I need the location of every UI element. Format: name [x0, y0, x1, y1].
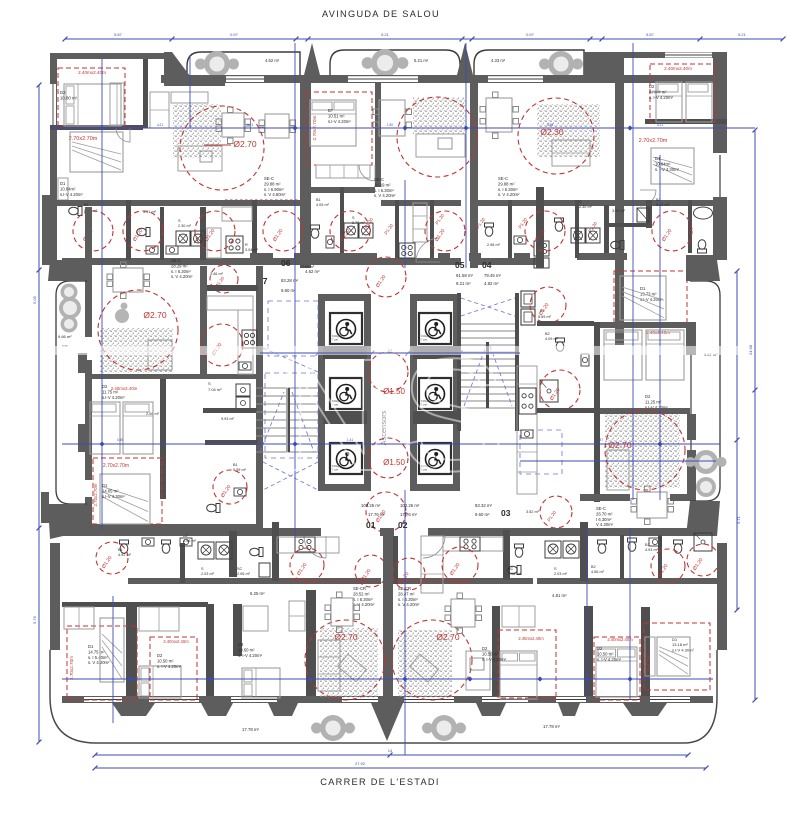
svg-text:s. I 6.30m²: s. I 6.30m² [353, 597, 373, 602]
svg-text:B2: B2 [591, 565, 596, 569]
svg-text:28.70 m²: 28.70 m² [596, 511, 613, 516]
svg-text:s.I-V 4.30m²: s.I-V 4.30m² [102, 494, 125, 499]
svg-text:Ø2.70: Ø2.70 [143, 310, 166, 320]
svg-text:0.97: 0.97 [526, 32, 535, 37]
svg-text:10.84m²: 10.84m² [655, 161, 671, 166]
svg-text:s. I 6.30m²: s. I 6.30m² [171, 269, 191, 274]
svg-text:s. I 6.30m²: s. I 6.30m² [374, 188, 394, 193]
svg-text:14.05 m²: 14.05 m² [102, 488, 119, 493]
svg-text:11.75 m²: 11.75 m² [102, 389, 119, 394]
svg-text:3.57 m²: 3.57 m² [612, 209, 626, 213]
svg-text:5.21: 5.21 [381, 32, 390, 37]
svg-text:5.87: 5.87 [646, 32, 655, 37]
svg-text:B1: B1 [316, 198, 321, 202]
svg-text:14: 14 [388, 748, 393, 753]
svg-text:5.76: 5.76 [32, 615, 37, 624]
svg-text:SE-C: SE-C [171, 258, 181, 263]
svg-text:s. V 4.20m²: s. V 4.20m² [171, 274, 193, 279]
svg-text:10.80 m²: 10.80 m² [60, 96, 78, 101]
svg-text:D2: D2 [102, 384, 108, 389]
svg-text:D2: D2 [157, 653, 163, 658]
svg-text:s. V 4.20m²: s. V 4.20m² [398, 602, 420, 607]
svg-text:2.40mx2.40m: 2.40mx2.40m [664, 66, 692, 71]
svg-text:2.70x2.70m: 2.70x2.70m [69, 136, 98, 142]
svg-text:83.28 m²: 83.28 m² [281, 278, 299, 283]
svg-text:D2: D2 [482, 646, 488, 651]
svg-text:05: 05 [455, 260, 465, 270]
svg-text:10.50 m²: 10.50 m² [482, 651, 499, 656]
svg-text:4.82 m²: 4.82 m² [484, 281, 499, 286]
svg-text:s. I-V 4.20m²: s. I-V 4.20m² [482, 657, 507, 662]
svg-text:03: 03 [501, 508, 511, 518]
svg-text:5.71: 5.71 [736, 515, 741, 524]
svg-text:B2: B2 [545, 332, 550, 336]
svg-text:s. I-V 4.20m²: s. I-V 4.20m² [157, 664, 182, 669]
svg-text:26.19 m²: 26.19 m² [374, 182, 391, 187]
svg-text:29.88 m²: 29.88 m² [498, 181, 515, 186]
svg-text:B1: B1 [118, 548, 123, 552]
svg-text:5.59 m²: 5.59 m² [233, 468, 247, 472]
svg-text:3.81: 3.81 [247, 123, 253, 127]
svg-text:2.03 m²: 2.03 m² [554, 572, 568, 576]
svg-text:2.70x2.70m: 2.70x2.70m [646, 653, 651, 677]
svg-text:2.40x2.40m: 2.40x2.40m [646, 330, 670, 335]
svg-text:##### m²: ##### m² [649, 89, 667, 94]
svg-text:SE-C: SE-C [264, 176, 274, 181]
svg-text:Ø2.30: Ø2.30 [540, 127, 563, 137]
svg-text:Ø2.70: Ø2.70 [608, 440, 631, 450]
svg-text:28.29 m²: 28.29 m² [171, 263, 188, 268]
svg-text:2.98 m²: 2.98 m² [487, 243, 501, 247]
svg-text:9.60 m²: 9.60 m² [475, 512, 490, 517]
svg-text:4.21: 4.21 [157, 123, 163, 127]
svg-text:s.I-V 4.30m²: s.I-V 4.30m² [672, 647, 694, 652]
svg-text:4.62 m²: 4.62 m² [305, 269, 320, 274]
svg-text:27.92: 27.92 [355, 761, 366, 766]
svg-text:5.25 m²: 5.25 m² [250, 591, 265, 596]
svg-text:10.50 m²: 10.50 m² [238, 647, 255, 652]
svg-text:24.68: 24.68 [748, 344, 753, 355]
svg-text:s. I 6.90m²: s. I 6.90m² [264, 187, 284, 192]
svg-text:2.70x2.70m: 2.70x2.70m [69, 656, 74, 680]
svg-text:2.40mx2.40m: 2.40mx2.40m [607, 637, 633, 642]
svg-text:s. V 4.20m²: s. V 4.20m² [498, 192, 520, 197]
svg-text:10.50 m²: 10.50 m² [597, 651, 614, 656]
svg-text:3.87: 3.87 [597, 438, 603, 442]
svg-text:2.40mx2.40m: 2.40mx2.40m [163, 639, 189, 644]
svg-text:3.04 m²: 3.04 m² [245, 248, 259, 252]
svg-text:s. I-V 4.20m²: s. I-V 4.20m² [649, 95, 674, 100]
svg-text:s.I-V 4.20m²: s.I-V 4.20m² [102, 395, 125, 400]
svg-text:V 4.20m²: V 4.20m² [596, 522, 614, 527]
svg-text:S: S [208, 381, 211, 386]
svg-text:s. V 4.60m²: s. V 4.60m² [264, 192, 286, 197]
svg-text:06: 06 [281, 258, 291, 268]
svg-text:CARRER DE L'ESTADI: CARRER DE L'ESTADI [320, 777, 439, 787]
svg-text:s. V 4.20m²: s. V 4.20m² [374, 193, 396, 198]
svg-text:D2: D2 [649, 84, 655, 89]
svg-text:SE-CR: SE-CR [353, 586, 366, 591]
svg-text:17.78 m²: 17.78 m² [242, 727, 260, 732]
svg-text:SE-C: SE-C [374, 177, 384, 182]
svg-text:s. I-V 4.30m²: s. I-V 4.30m² [655, 167, 680, 172]
svg-text:s.I-V 4.20m²: s.I-V 4.20m² [328, 119, 351, 124]
svg-text:D1: D1 [102, 483, 108, 488]
svg-text:28.52 m²: 28.52 m² [353, 591, 370, 596]
svg-text:D1: D1 [88, 644, 94, 649]
svg-text:91.58 m²: 91.58 m² [456, 273, 474, 278]
svg-text:SE-C: SE-C [498, 176, 508, 181]
svg-text:4.96 m²: 4.96 m² [183, 539, 197, 543]
svg-text:17.76 m²: 17.76 m² [400, 512, 418, 517]
svg-text:9.60 m²: 9.60 m² [281, 288, 296, 293]
svg-text:s. I-V 4.20m²: s. I-V 4.20m² [597, 657, 622, 662]
svg-text:B?: B? [328, 108, 334, 113]
svg-text:2.70x2.70m: 2.70x2.70m [93, 483, 98, 506]
svg-text:D2: D2 [645, 394, 651, 399]
svg-text:5.05: 5.05 [32, 295, 37, 304]
svg-text:5.21: 5.21 [738, 32, 747, 37]
svg-text:s.I-V 4.20m²: s.I-V 4.20m² [60, 192, 83, 197]
svg-text:2.06 m²: 2.06 m² [237, 572, 251, 576]
svg-text:s. V 4.20m²: s. V 4.20m² [88, 660, 110, 665]
svg-text:11.25 m²: 11.25 m² [645, 399, 662, 404]
svg-text:NS: NS [274, 325, 516, 504]
svg-text:BC: BC [508, 567, 514, 571]
svg-text:10.50 m²: 10.50 m² [157, 658, 174, 663]
svg-text:10.84m²: 10.84m² [60, 186, 76, 191]
svg-text:2.70 m²: 2.70 m² [352, 221, 366, 225]
svg-text:9.66 m²: 9.66 m² [58, 334, 72, 339]
svg-text:4.33 m²: 4.33 m² [491, 58, 506, 63]
svg-text:D1: D1 [60, 181, 66, 186]
svg-text:17.78 m²: 17.78 m² [543, 724, 561, 729]
svg-text:R: R [245, 243, 248, 247]
svg-text:B1: B1 [84, 203, 89, 207]
svg-text:2.30 m²: 2.30 m² [579, 205, 593, 209]
svg-text:01: 01 [366, 520, 376, 530]
svg-text:3.46 m²: 3.46 m² [210, 272, 224, 276]
svg-text:2.45mx2.40m: 2.45mx2.40m [518, 636, 544, 641]
svg-text:s. I 6.30m²: s. I 6.30m² [398, 597, 418, 602]
svg-text:D3: D3 [238, 642, 244, 647]
svg-text:02: 02 [398, 520, 408, 530]
svg-text:2.08 m²: 2.08 m² [508, 572, 522, 576]
svg-text:2.70x2.70m: 2.70x2.70m [639, 138, 668, 144]
svg-text:14.75 m²: 14.75 m² [88, 649, 105, 654]
svg-text:AVINGUDA DE SALOU: AVINGUDA DE SALOU [322, 9, 440, 19]
svg-text:Ø2.70: Ø2.70 [436, 632, 459, 642]
svg-text:D2: D2 [597, 646, 603, 651]
svg-text:SC: SC [237, 567, 243, 571]
svg-text:4.62 m²: 4.62 m² [265, 58, 280, 63]
svg-text:B1: B1 [645, 543, 650, 547]
svg-text:SE-C: SE-C [596, 506, 606, 511]
svg-text:4.05 m²: 4.05 m² [316, 203, 330, 207]
svg-text:3.98: 3.98 [547, 123, 553, 127]
svg-text:04: 04 [482, 260, 492, 270]
svg-text:4.56 m²: 4.56 m² [591, 570, 605, 574]
svg-text:SE-CR: SE-CR [398, 586, 411, 591]
svg-text:3.98: 3.98 [117, 438, 123, 442]
svg-text:4.81 m²: 4.81 m² [552, 593, 567, 598]
svg-text:4.92 m²: 4.92 m² [118, 553, 132, 557]
svg-text:28.47 m²: 28.47 m² [398, 591, 415, 596]
svg-text:D1: D1 [640, 286, 646, 291]
svg-text:4.21: 4.21 [657, 123, 663, 127]
svg-text:9.93 m²: 9.93 m² [221, 417, 235, 421]
svg-text:29.88 m²: 29.88 m² [264, 181, 281, 186]
svg-text:5.87: 5.87 [114, 32, 123, 37]
svg-text:s. I-V 4.20m²: s. I-V 4.20m² [238, 653, 263, 658]
svg-text:5.64 m²: 5.64 m² [656, 203, 670, 207]
svg-text:0.97: 0.97 [230, 32, 239, 37]
svg-text:9.21 m²: 9.21 m² [456, 281, 471, 286]
svg-text:4.93 m²: 4.93 m² [645, 548, 659, 552]
svg-text:7.04 m²: 7.04 m² [208, 387, 222, 392]
svg-text:2.30 m²: 2.30 m² [178, 224, 192, 228]
svg-text:2.03 m²: 2.03 m² [201, 572, 215, 576]
svg-text:s. I 5.40m²: s. I 5.40m² [88, 655, 108, 660]
svg-text:I 6.30m²: I 6.30m² [596, 517, 612, 522]
svg-text:79.45 m²: 79.45 m² [484, 273, 502, 278]
svg-text:D2: D2 [60, 90, 66, 95]
svg-text:1.50: 1.50 [387, 123, 393, 127]
svg-text:17.76 m²: 17.76 m² [368, 512, 386, 517]
svg-text:5.21 m²: 5.21 m² [414, 58, 429, 63]
svg-text:s. I 6.30m²: s. I 6.30m² [498, 187, 518, 192]
svg-text:Ø2.70: Ø2.70 [233, 139, 256, 149]
svg-text:2.70x2.70m: 2.70x2.70m [103, 463, 129, 469]
svg-text:B1: B1 [233, 463, 238, 467]
svg-text:4.09 m²: 4.09 m² [545, 337, 559, 341]
svg-text:3.52 m²: 3.52 m² [526, 510, 540, 514]
svg-text:10.51 m²: 10.51 m² [328, 113, 345, 118]
